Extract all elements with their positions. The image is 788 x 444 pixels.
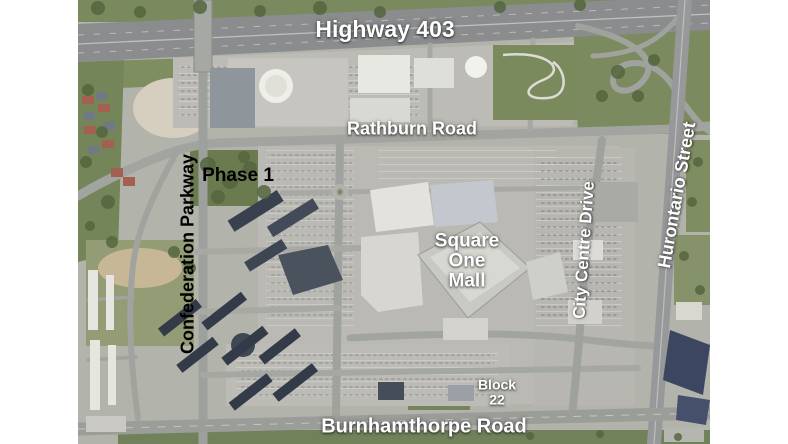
satellite-map-art: [78, 0, 710, 444]
satellite-imagery: [78, 0, 710, 444]
annotated-aerial-map: Highway 403 Rathburn Road Phase 1 Confed…: [0, 0, 788, 444]
